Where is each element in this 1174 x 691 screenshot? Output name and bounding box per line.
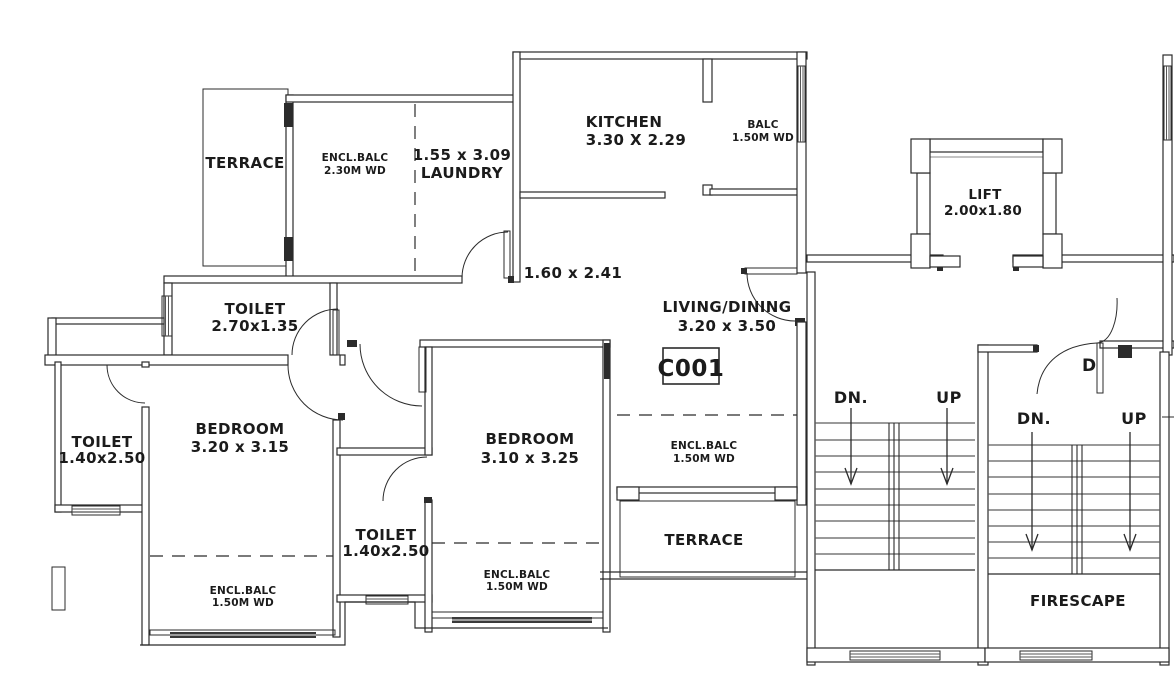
room-dim: 3.30 X 2.29	[586, 131, 686, 149]
unit-label: C001	[658, 356, 725, 382]
room-dim: 1.50M WD	[486, 581, 548, 593]
door-leaf	[1097, 343, 1103, 393]
stair-up-arrow-icon	[941, 408, 953, 484]
room-dim: 1.50M WD	[673, 453, 735, 465]
room-label-encl-balc-top: ENCL.BALC	[322, 152, 389, 164]
room-dim: 1.40x2.50	[58, 449, 145, 467]
room-dim: 1.50M WD	[212, 597, 274, 609]
door-tag-label: D	[1082, 356, 1096, 376]
stair-fire-up-label: UP	[1121, 409, 1147, 428]
door-leaf	[504, 231, 510, 278]
room-label-bedroom-mid: BEDROOM	[486, 430, 575, 448]
room-dim: 2.70x1.35	[211, 317, 298, 335]
room-label-bedroom-left: BEDROOM	[196, 420, 285, 438]
room-label-encl-balc-bed-mid: ENCL.BALC	[484, 569, 551, 581]
staircase-main	[815, 408, 975, 570]
room-label-lift: LIFT	[968, 187, 1002, 203]
stair-down-arrow-icon	[1026, 432, 1038, 550]
room-dim: 2.00x1.80	[944, 203, 1022, 219]
room-label-laundry: 1.55 x 3.09	[413, 146, 512, 164]
stair-up-arrow-icon	[1124, 432, 1136, 550]
room-label-passage: 1.60 x 2.41	[524, 264, 623, 282]
room-dim: 3.20 x 3.50	[678, 317, 777, 335]
room-label-terrace-top: TERRACE	[205, 154, 284, 172]
stair-fire-down-label: DN.	[1017, 409, 1051, 428]
stair-main-up-label: UP	[936, 388, 962, 407]
stair-main-down-label: DN.	[834, 388, 868, 407]
staircase-firescape	[988, 432, 1160, 574]
room-label-encl-balc-bed-left: ENCL.BALC	[210, 585, 277, 597]
room-dim: 1.40x2.50	[342, 542, 429, 560]
room-label-terrace-right: TERRACE	[664, 531, 743, 549]
room-dim: 3.10 x 3.25	[481, 449, 580, 467]
room-label-living-dining: LIVING/DINING	[663, 298, 792, 316]
room-dim: 1.50M WD	[732, 132, 794, 144]
unit-tag: C001	[658, 348, 725, 384]
room-dim: LAUNDRY	[421, 164, 504, 182]
room-dim: 2.30M WD	[324, 165, 386, 177]
room-label-firescape: FIRESCAPE	[1030, 592, 1126, 610]
floor-plan-page: C001 TERRACE ENCL.BALC 2.30M WD 1.55 x 3…	[0, 0, 1174, 691]
room-label-encl-balc-living: ENCL.BALC	[671, 440, 738, 452]
door-leaf	[745, 268, 797, 274]
stair-down-arrow-icon	[845, 408, 857, 484]
room-label-toilet-common: TOILET	[224, 300, 285, 318]
floor-plan-drawing: C001 TERRACE ENCL.BALC 2.30M WD 1.55 x 3…	[0, 0, 1174, 691]
room-dim: 3.20 x 3.15	[191, 438, 290, 456]
room-label-balc: BALC	[747, 119, 778, 131]
room-label-kitchen: KITCHEN	[586, 113, 663, 131]
